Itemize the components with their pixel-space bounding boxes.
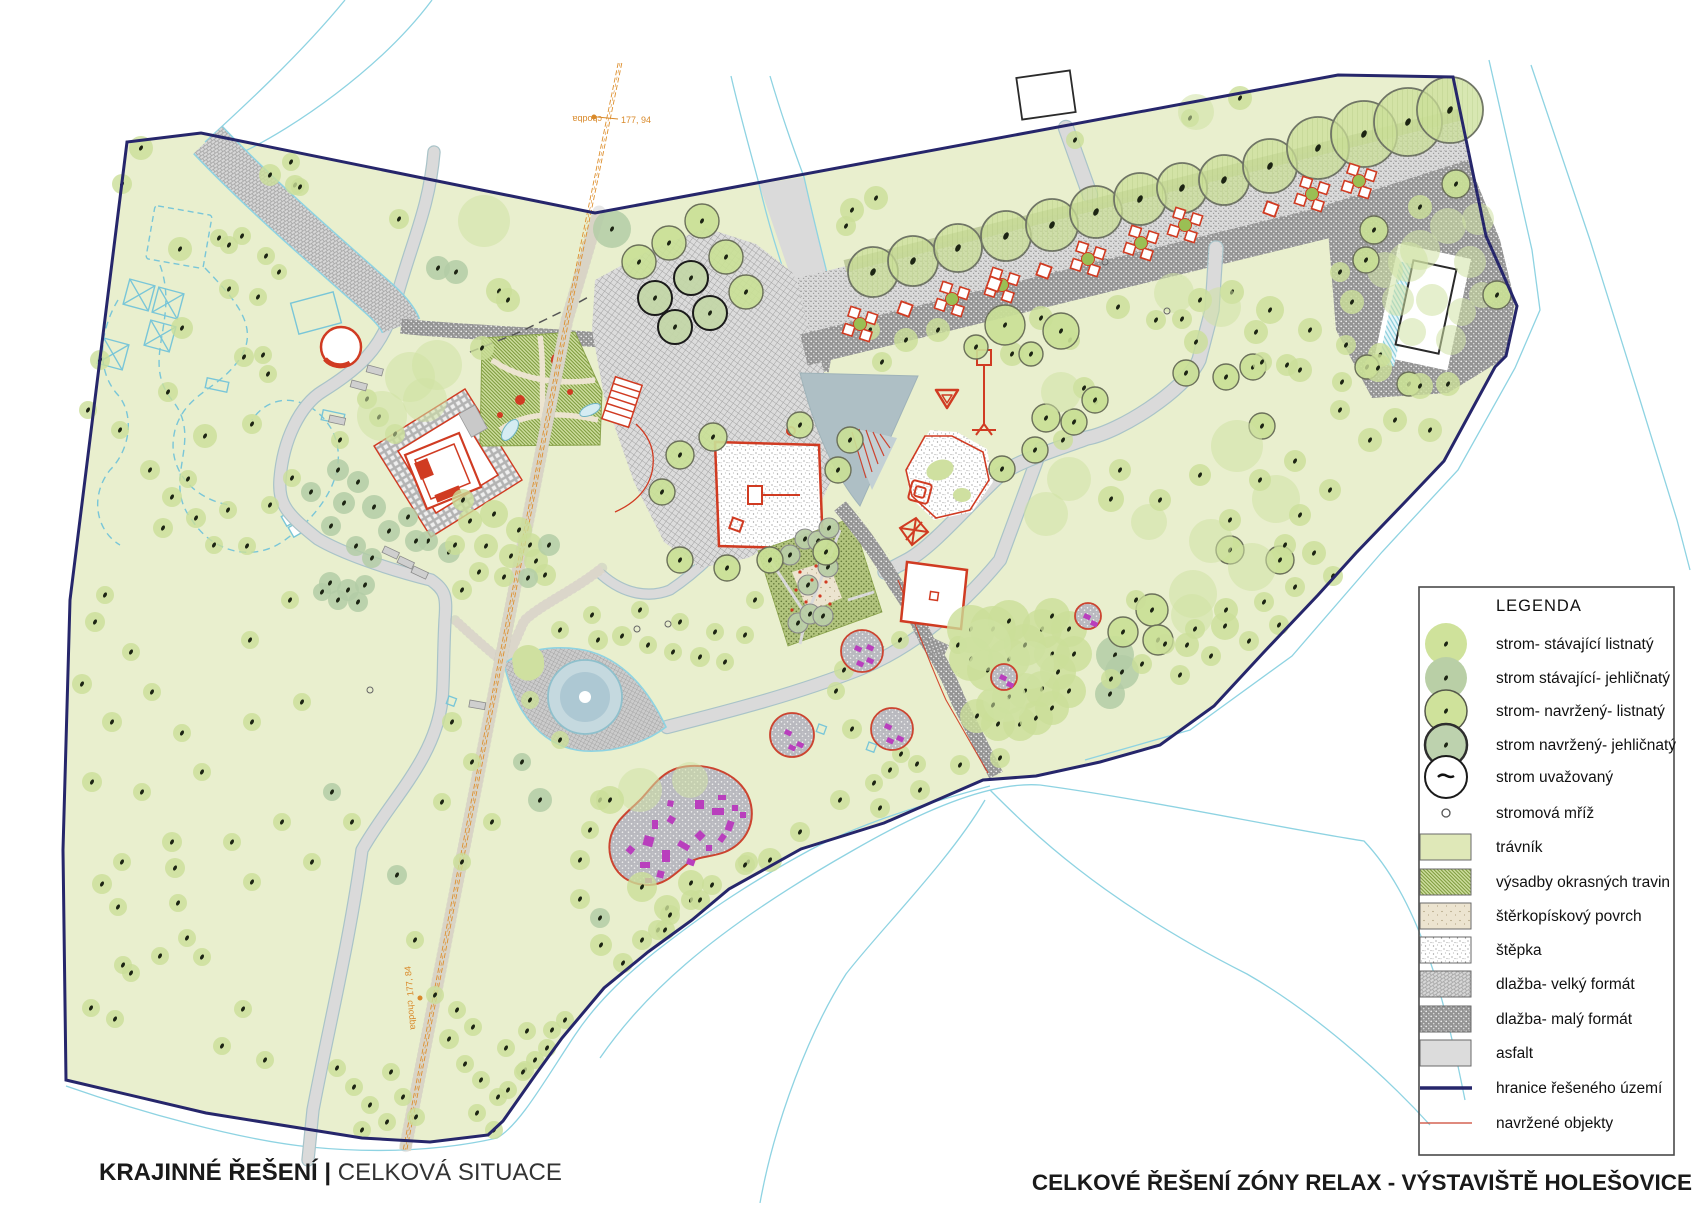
svg-text:strom navržený- jehličnatý: strom navržený- jehličnatý bbox=[1496, 737, 1676, 754]
svg-text:strom uvažovaný: strom uvažovaný bbox=[1496, 769, 1613, 786]
svg-text:KRAJINNÉ ŘEŠENÍ | CELKOVÁ SITU: KRAJINNÉ ŘEŠENÍ | CELKOVÁ SITUACE bbox=[99, 1158, 562, 1186]
svg-text:štěrkopískový povrch: štěrkopískový povrch bbox=[1496, 908, 1642, 925]
svg-text:CELKOVÉ ŘEŠENÍ ZÓNY RELAX - VÝ: CELKOVÉ ŘEŠENÍ ZÓNY RELAX - VÝSTAVIŠTĚ H… bbox=[1032, 1170, 1692, 1195]
svg-text:trávník: trávník bbox=[1496, 839, 1543, 856]
svg-text:strom stávající- jehličnatý: strom stávající- jehličnatý bbox=[1496, 670, 1670, 687]
svg-text:hranice řešeného území: hranice řešeného území bbox=[1496, 1080, 1663, 1097]
svg-text:výsadby okrasných travin: výsadby okrasných travin bbox=[1496, 874, 1670, 891]
svg-text:177, 94: 177, 94 bbox=[621, 115, 651, 125]
svg-text:strom- navržený- listnatý: strom- navržený- listnatý bbox=[1496, 703, 1665, 720]
svg-text:dlažba- velký formát: dlažba- velký formát bbox=[1496, 976, 1635, 993]
svg-text:LEGENDA: LEGENDA bbox=[1496, 597, 1582, 615]
svg-text:chodba: chodba bbox=[572, 114, 602, 124]
svg-text:štěpka: štěpka bbox=[1496, 942, 1542, 959]
svg-text:dlažba- malý formát: dlažba- malý formát bbox=[1496, 1011, 1633, 1028]
svg-text:asfalt: asfalt bbox=[1496, 1045, 1534, 1062]
svg-text:strom- stávající listnatý: strom- stávající listnatý bbox=[1496, 636, 1654, 653]
svg-text:stromová mříž: stromová mříž bbox=[1496, 805, 1594, 822]
svg-text:navržené objekty: navržené objekty bbox=[1496, 1115, 1613, 1132]
